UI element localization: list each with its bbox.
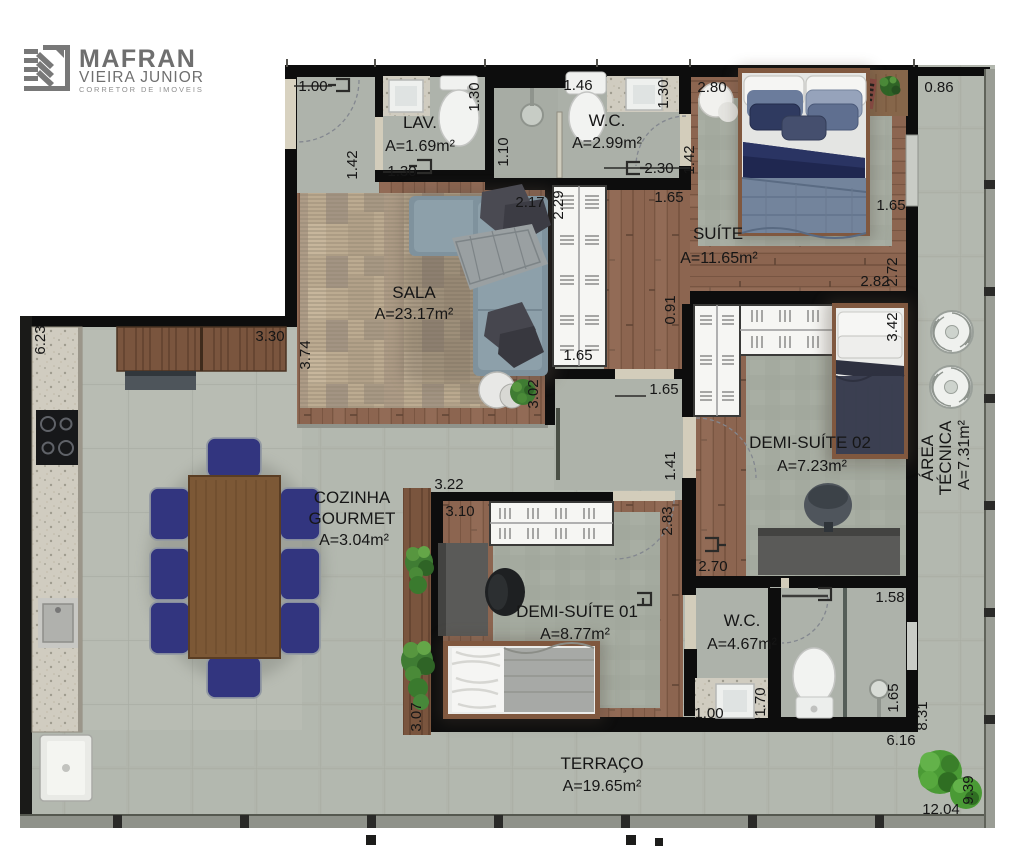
svg-text:2.30: 2.30 [644,160,673,177]
svg-text:1.00: 1.00 [694,705,723,722]
svg-text:2.70: 2.70 [698,558,727,575]
svg-text:1.10: 1.10 [495,137,512,166]
svg-text:6.23: 6.23 [32,325,49,354]
svg-text:A=7.23m²: A=7.23m² [777,458,847,475]
svg-text:VIEIRA JUNIOR: VIEIRA JUNIOR [79,69,204,86]
svg-text:SALA: SALA [392,283,436,302]
svg-text:SUÍTE: SUÍTE [693,224,743,243]
svg-text:CORRETOR DE IMOVEIS: CORRETOR DE IMOVEIS [79,85,204,94]
svg-text:1.65: 1.65 [563,347,592,364]
svg-text:ÁREA: ÁREA [918,434,937,481]
svg-text:1.65: 1.65 [649,381,678,398]
svg-text:1.30: 1.30 [387,163,416,180]
svg-text:1.42: 1.42 [681,145,698,174]
svg-text:0.91: 0.91 [662,295,679,324]
svg-text:DEMI-SUÍTE 01: DEMI-SUÍTE 01 [516,602,638,621]
svg-text:3.10: 3.10 [445,503,474,520]
svg-text:A=4.67m²: A=4.67m² [707,636,777,653]
svg-text:W.C.: W.C. [589,111,626,130]
svg-text:1.30: 1.30 [655,79,672,108]
svg-text:1.46: 1.46 [563,77,592,94]
svg-text:GOURMET: GOURMET [309,509,396,528]
svg-text:1.42: 1.42 [344,150,361,179]
svg-text:2.72: 2.72 [884,257,901,286]
svg-text:1.65: 1.65 [876,197,905,214]
svg-text:TÉCNICA: TÉCNICA [936,420,955,495]
svg-text:3.02: 3.02 [525,379,542,408]
svg-text:0.86: 0.86 [924,79,953,96]
svg-text:LAV.: LAV. [403,113,437,132]
svg-text:A=23.17m²: A=23.17m² [375,306,454,323]
svg-text:1.58: 1.58 [875,589,904,606]
svg-text:3.30: 3.30 [255,328,284,345]
svg-text:1.41: 1.41 [662,451,679,480]
svg-text:3.07: 3.07 [408,702,425,731]
svg-text:3.42: 3.42 [884,312,901,341]
svg-text:2.83: 2.83 [659,506,676,535]
svg-text:1.65: 1.65 [654,189,683,206]
svg-text:A=3.04m²: A=3.04m² [319,532,389,549]
svg-text:12.04: 12.04 [922,801,960,818]
svg-text:8.31: 8.31 [914,701,931,730]
svg-text:A=7.31m²: A=7.31m² [956,419,973,489]
svg-text:6.16: 6.16 [886,732,915,749]
svg-text:2.17: 2.17 [515,194,544,211]
svg-text:1.00: 1.00 [298,78,327,95]
svg-text:9.39: 9.39 [960,775,977,804]
svg-text:A=8.77m²: A=8.77m² [540,626,610,643]
svg-text:COZINHA: COZINHA [314,488,391,507]
svg-text:TERRAÇO: TERRAÇO [560,754,643,773]
svg-text:A=11.65m²: A=11.65m² [680,250,758,267]
svg-text:1.65: 1.65 [885,683,902,712]
svg-text:A=2.99m²: A=2.99m² [572,135,642,152]
svg-text:W.C.: W.C. [724,611,761,630]
svg-text:A=19.65m²: A=19.65m² [563,778,642,795]
svg-text:3.74: 3.74 [297,340,314,369]
svg-text:3.22: 3.22 [434,476,463,493]
svg-text:1.70: 1.70 [752,687,769,716]
svg-text:A=1.69m²: A=1.69m² [385,138,455,155]
svg-text:1.30: 1.30 [466,82,483,111]
svg-text:2.80: 2.80 [697,79,726,96]
svg-text:2.29: 2.29 [550,190,567,219]
svg-text:DEMI-SUÍTE 02: DEMI-SUÍTE 02 [749,433,871,452]
